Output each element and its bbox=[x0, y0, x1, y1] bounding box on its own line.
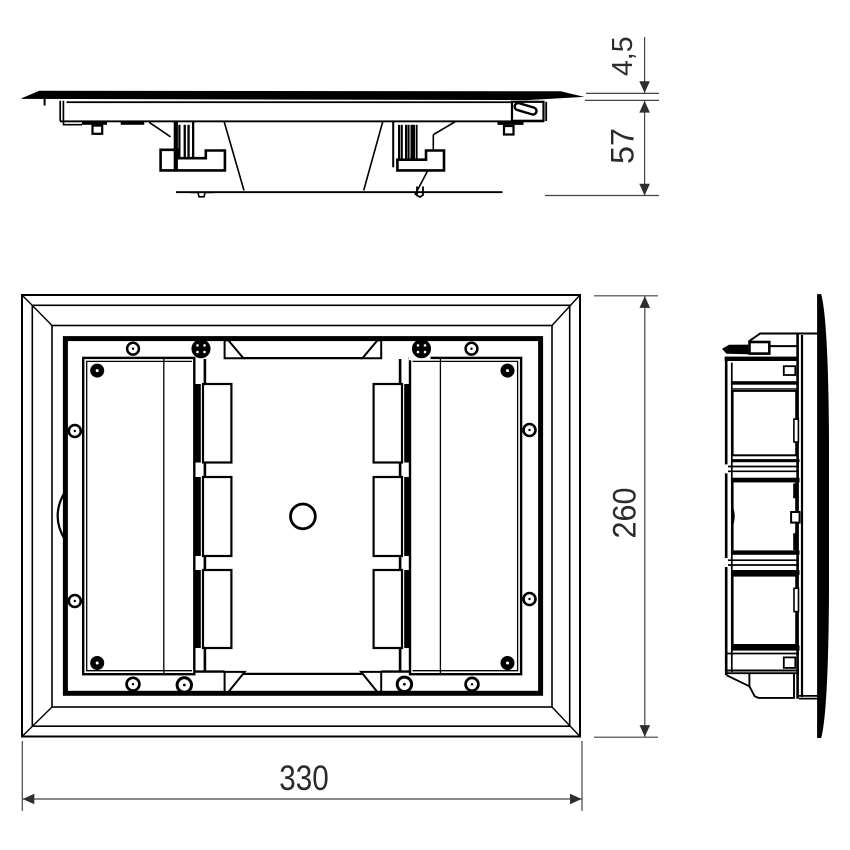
svg-text:57: 57 bbox=[605, 128, 641, 164]
svg-text:4,5: 4,5 bbox=[607, 37, 639, 77]
svg-text:260: 260 bbox=[607, 488, 643, 539]
svg-text:330: 330 bbox=[279, 758, 329, 798]
